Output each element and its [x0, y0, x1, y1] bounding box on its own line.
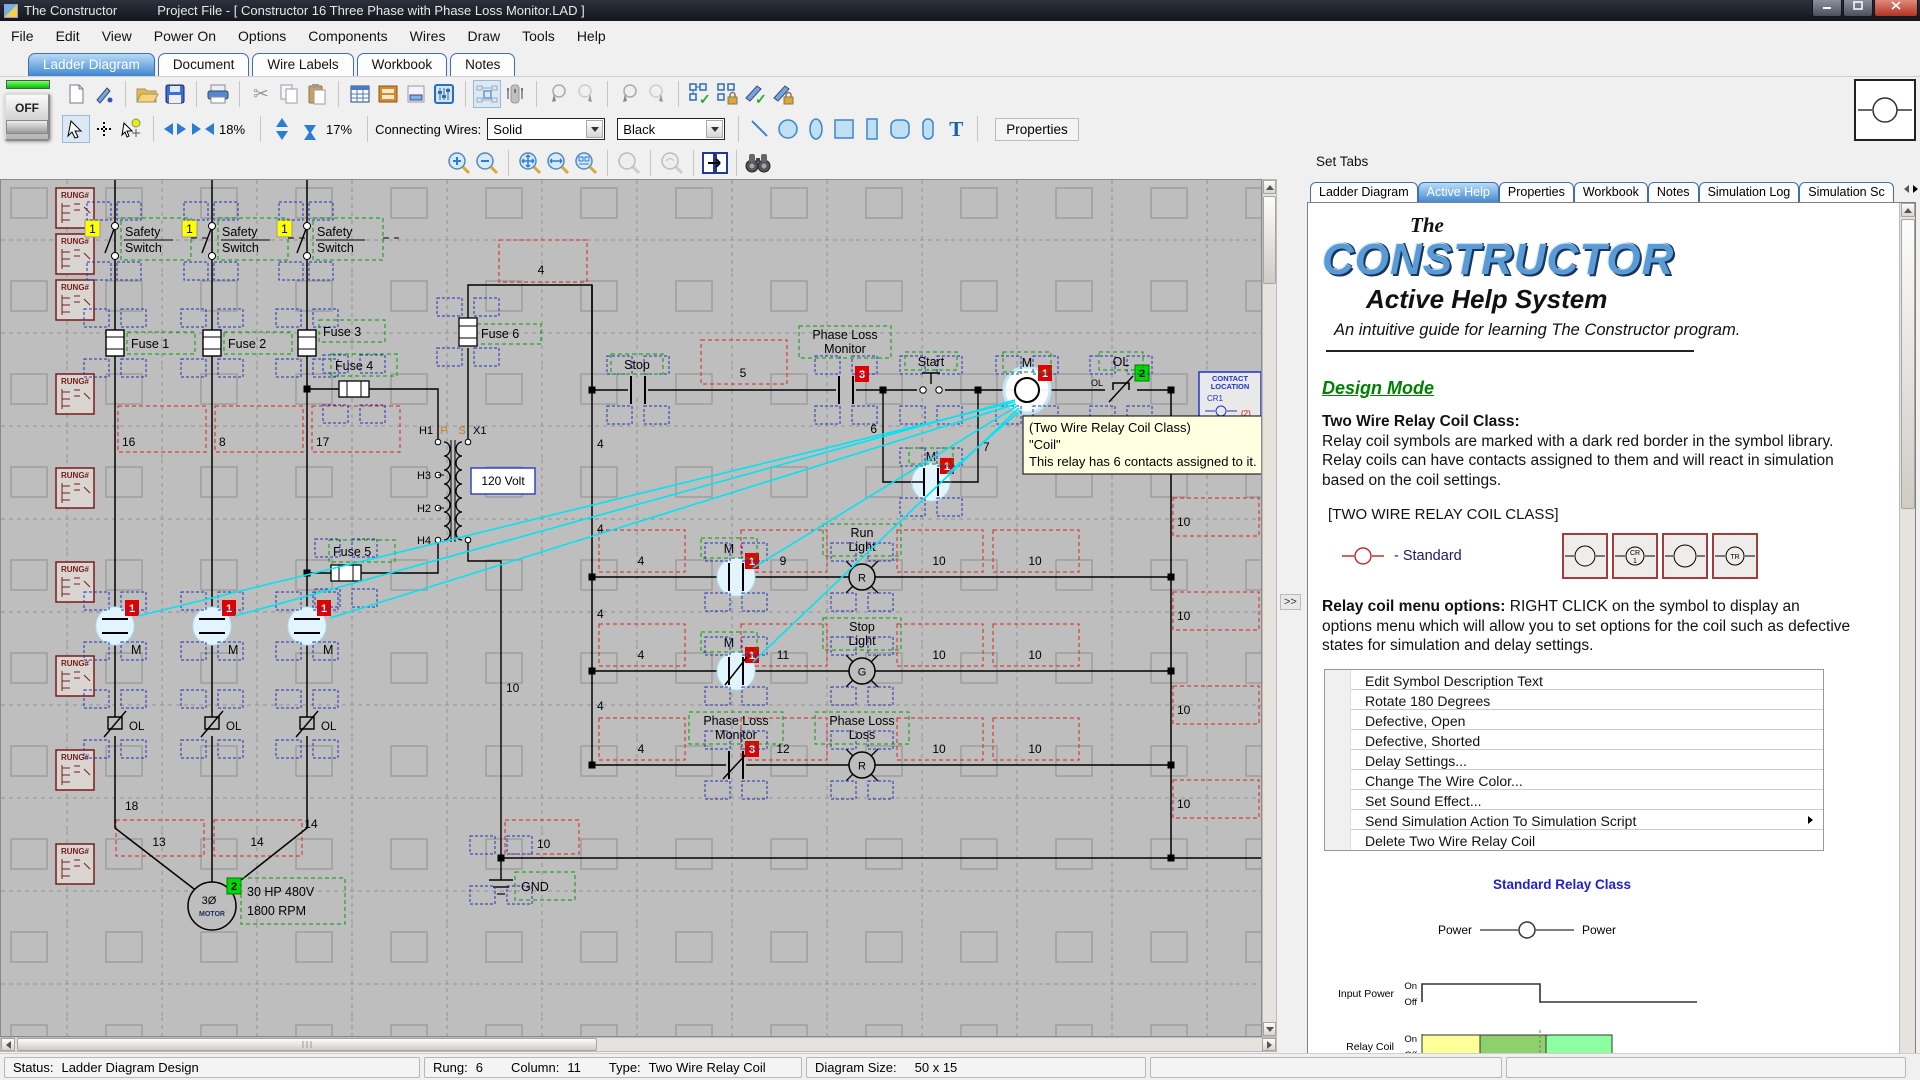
draw-text-icon[interactable]: T [942, 115, 970, 143]
wire-num: 18 [125, 799, 139, 813]
wire-num: 10 [1177, 609, 1191, 623]
wire-num: 10 [537, 837, 551, 851]
edit-wand-icon[interactable] [90, 80, 118, 108]
panel-splitter[interactable]: >> [1277, 179, 1302, 1037]
fuse2-label: Fuse 2 [228, 337, 266, 351]
rung-label: Rung: [433, 1060, 468, 1075]
wire-bend2-icon[interactable] [572, 80, 600, 108]
wire-num: 4 [638, 648, 645, 662]
menu-item-wire-color: Change The Wire Color... [1351, 770, 1823, 790]
diagram-size-label: Diagram Size: [815, 1060, 897, 1075]
tooltip-line2: "Coil" [1029, 437, 1061, 452]
volt-label: 120 Volt [481, 474, 525, 488]
zoom-undo-icon[interactable] [658, 149, 686, 177]
x1-label: X1 [473, 425, 486, 437]
tooltip-line3: This relay has 6 contacts assigned to it… [1029, 454, 1257, 469]
wire-num: 14 [250, 835, 264, 849]
paste-icon[interactable] [303, 80, 331, 108]
vertical-zoom-value: 17% [326, 122, 352, 137]
power-led-icon [6, 80, 50, 89]
menu-item-send-sim: Send Simulation Action To Simulation Scr… [1351, 810, 1823, 830]
document-tabs: Ladder Diagram Document Wire Labels Work… [0, 50, 1920, 77]
wire-num: 17 [316, 435, 330, 449]
wire-num: 10 [1177, 797, 1191, 811]
stop-light-label1: Stop [849, 620, 875, 634]
maximize-button[interactable] [1843, 0, 1873, 17]
svg-text:Power: Power [1438, 923, 1472, 937]
zoom-in-icon[interactable] [445, 149, 473, 177]
wire-num: 4 [638, 742, 645, 756]
save-icon[interactable] [161, 80, 189, 108]
wire-num: 12 [776, 742, 790, 756]
menu-item-defective-shorted: Defective, Shorted [1351, 730, 1823, 750]
app-icon [4, 4, 18, 18]
stop-light-label2: Light [848, 634, 876, 648]
menu-item-rotate: Rotate 180 Degrees [1351, 690, 1823, 710]
h2-label: H2 [417, 503, 431, 515]
plm-label-1: Phase Loss [812, 328, 877, 342]
horizontal-zoom-value: 18% [219, 122, 245, 137]
new-file-icon[interactable] [62, 80, 90, 108]
fuse1-label: Fuse 1 [131, 337, 169, 351]
expand-panel-button[interactable]: >> [1280, 594, 1301, 610]
column-label: Column: [511, 1060, 559, 1075]
document-title: Project File - [ Constructor 16 Three Ph… [157, 3, 585, 18]
copy-icon[interactable] [275, 80, 303, 108]
selected-symbol-preview [1854, 79, 1916, 141]
help-content: The CONSTRUCTOR Active Help System An in… [1308, 203, 1900, 1080]
wire-num: 10 [932, 648, 946, 662]
svg-text:Power: Power [1582, 923, 1616, 937]
start-label: Start [918, 355, 945, 369]
find-binoculars-icon[interactable] [744, 149, 772, 177]
phase-loss-label2: Loss [849, 728, 875, 742]
edit-verify-icon[interactable]: ✓ [742, 80, 770, 108]
svg-text:✓: ✓ [699, 91, 711, 106]
stretch-horizontal-icon[interactable] [161, 115, 189, 143]
standard-coil-icon [1342, 543, 1386, 569]
draw-circle-icon[interactable] [774, 115, 802, 143]
plm2-label1: Phase Loss [703, 714, 768, 728]
coil-symbol-tr: TR [1712, 533, 1758, 579]
wire-table-icon[interactable] [374, 80, 402, 108]
run-light-label1: Run [851, 526, 874, 540]
power-switch[interactable]: OFF [4, 80, 56, 144]
power-off-label: OFF [15, 101, 39, 115]
plm-label-2: Monitor [824, 342, 866, 356]
wire-num: 4 [638, 554, 645, 568]
wire-loop-icon[interactable] [615, 80, 643, 108]
run-contact-label: M [724, 542, 734, 556]
gnd-label: GND [521, 880, 549, 894]
motor-rpm-label: 1800 RPM [247, 904, 306, 918]
draw-line-icon[interactable] [746, 115, 774, 143]
motor-badge: 2 [231, 881, 237, 893]
ol-small-label: OL [1091, 378, 1103, 388]
app-title: The Constructor [24, 3, 117, 18]
p-label: P [440, 425, 447, 437]
right-panel-tabs: Ladder Diagram Active Help Properties Wo… [1302, 179, 1920, 203]
snap-grid-icon[interactable] [90, 115, 118, 143]
close-button[interactable] [1874, 0, 1918, 17]
ladder-diagram-canvas[interactable]: RUNG# 1 Safety Switch [0, 179, 1262, 1037]
cut-icon[interactable]: ✂ [247, 80, 275, 108]
status-label: Status: [13, 1060, 53, 1075]
connecting-wires-label: Connecting Wires: [375, 122, 481, 137]
cr1-label: CR1 [1207, 394, 1224, 403]
wire-num: 16 [122, 435, 136, 449]
menu-components[interactable]: Components [297, 24, 398, 48]
shrink-horizontal-icon[interactable] [189, 115, 217, 143]
zoom-out-icon[interactable] [473, 149, 501, 177]
type-value: Two Wire Relay Coil [649, 1060, 766, 1075]
title-bar: The Constructor Project File - [ Constru… [0, 0, 1920, 21]
print-icon[interactable] [204, 80, 232, 108]
run-light-label2: Light [848, 540, 876, 554]
menu-item-sound: Set Sound Effect... [1351, 790, 1823, 810]
zoom-selection-icon[interactable] [572, 149, 600, 177]
stretch-vertical-icon[interactable] [268, 115, 296, 143]
contact-location-box[interactable]: CONTACT LOCATION CR1 (2) [1199, 372, 1261, 422]
right-panel: Set Tabs Ladder Diagram Active Help Prop… [1302, 150, 1920, 1080]
h3-label: H3 [417, 470, 431, 482]
svg-text:On: On [1404, 1034, 1417, 1045]
wire-num: 10 [1028, 554, 1042, 568]
tooltip-line1: (Two Wire Relay Coil Class) [1029, 420, 1191, 435]
lock-layout-icon[interactable] [714, 80, 742, 108]
tab-notes[interactable]: Notes [450, 53, 515, 76]
menu-wires[interactable]: Wires [399, 24, 457, 48]
coil-symbol-1 [1562, 533, 1608, 579]
wire-num: 4 [597, 607, 604, 621]
menu-power-on[interactable]: Power On [143, 24, 227, 48]
context-menu-image: Edit Symbol Description Text Rotate 180 … [1324, 669, 1824, 851]
diagram-size-value: 50 x 15 [915, 1060, 958, 1075]
tab-document[interactable]: Document [158, 53, 250, 76]
rtab-active-help[interactable]: Active Help [1418, 182, 1499, 203]
wire-num: 8 [219, 435, 226, 449]
tab-ladder-diagram[interactable]: Ladder Diagram [28, 53, 155, 76]
fuse4-label: Fuse 4 [335, 359, 373, 373]
menu-options[interactable]: Options [227, 24, 297, 48]
layout-nodes-icon[interactable] [473, 80, 501, 108]
menu-item-defective-open: Defective, Open [1351, 710, 1823, 730]
wire-num: 14 [304, 817, 318, 831]
open-file-icon[interactable] [133, 80, 161, 108]
wire-bend-icon[interactable] [544, 80, 572, 108]
phase-loss-label1: Phase Loss [829, 714, 894, 728]
class-title: Two Wire Relay Coil Class: [1322, 413, 1896, 431]
rtab-notes[interactable]: Notes [1648, 182, 1699, 203]
type-label: Type: [609, 1060, 641, 1075]
svg-text:Off: Off [1405, 997, 1418, 1008]
s-label: S [458, 425, 465, 437]
wire-num: 10 [932, 742, 946, 756]
menu-item-edit-desc: Edit Symbol Description Text [1351, 670, 1823, 690]
draw-narrow-rect-icon[interactable] [858, 115, 886, 143]
draw-rounded-rect-icon[interactable] [886, 115, 914, 143]
motor-phase-label: 3Ø [202, 895, 217, 907]
wire-style-value: Solid [493, 122, 522, 137]
wire-color-value: Black [623, 122, 655, 137]
plm-badge: 3 [859, 369, 865, 381]
help-scrollbar[interactable] [1899, 203, 1915, 1080]
wire-num: 10 [506, 681, 520, 695]
wire-num: 4 [597, 699, 604, 713]
canvas-vertical-scrollbar[interactable] [1262, 179, 1277, 1037]
menu-bar: File Edit View Power On Options Componen… [0, 21, 1920, 50]
zoom-fit-icon[interactable] [516, 149, 544, 177]
rtab-workbook[interactable]: Workbook [1574, 182, 1648, 203]
menu-options-heading: Relay coil menu options: [1322, 598, 1505, 615]
shrink-vertical-icon[interactable] [296, 115, 324, 143]
wire-num: 9 [780, 554, 787, 568]
rung-value: 6 [476, 1060, 483, 1075]
edit-toolbar: 18% 17% Connecting Wires: Solid Black T … [62, 112, 1852, 146]
zoom-toolbar [445, 147, 1275, 178]
wire-num: 5 [740, 366, 747, 380]
fuse6-label: Fuse 6 [481, 327, 519, 341]
symbol-examples-row: - Standard CR1 TR [1342, 533, 1896, 579]
wire-num: 6 [870, 422, 877, 436]
menu-help[interactable]: Help [566, 24, 617, 48]
wire-num: 13 [152, 835, 166, 849]
rtab-properties[interactable]: Properties [1499, 182, 1574, 203]
svg-text:On: On [1404, 981, 1417, 992]
coil-symbol-cr1: CR1 [1612, 533, 1658, 579]
draw-rounded-narrow-icon[interactable] [914, 115, 942, 143]
menu-view[interactable]: View [91, 24, 143, 48]
class-description: Relay coil symbols are marked with a dar… [1322, 432, 1852, 490]
stop-lamp-letter: G [858, 667, 867, 679]
stoplight-contact-label: M [724, 636, 734, 650]
fuse3-label: Fuse 3 [323, 325, 361, 339]
draw-ellipse-icon[interactable] [802, 115, 830, 143]
h1-label: H1 [419, 425, 433, 437]
stop-label: Stop [624, 358, 650, 372]
canvas-horizontal-scrollbar[interactable] [0, 1037, 1277, 1052]
zoom-width-icon[interactable] [544, 149, 572, 177]
constructor-logo: The CONSTRUCTOR Active Help System An in… [1322, 213, 1896, 352]
logo-tagline: An intuitive guide for learning The Cons… [1334, 321, 1896, 340]
rtab-simulation-script[interactable]: Simulation Sc [1799, 182, 1893, 203]
zoom-previous-icon[interactable] [615, 149, 643, 177]
menu-item-delay: Delay Settings... [1351, 750, 1823, 770]
relay-timing-diagram: Power Power Input Power On Off Relay Coi… [1322, 892, 1882, 1080]
svg-text:✓: ✓ [755, 91, 767, 106]
control-sliders-icon[interactable] [501, 80, 529, 108]
wire-num: 11 [777, 648, 790, 662]
tab-wire-labels[interactable]: Wire Labels [252, 53, 353, 76]
standard-relay-class-title: Standard Relay Class [1322, 877, 1802, 892]
tabs-scroll-left-icon[interactable] [1904, 185, 1909, 193]
draw-rectangle-icon[interactable] [830, 115, 858, 143]
wire-loop2-icon[interactable] [643, 80, 671, 108]
logo-subtitle: Active Help System [1366, 284, 1896, 315]
wire-color-dropdown[interactable]: Black [617, 118, 725, 140]
class-tag: [TWO WIRE RELAY COIL CLASS] [1328, 506, 1896, 523]
main-toolbar: ✂ ✓ ✓ [62, 77, 1852, 111]
plm2-label2: Monitor [715, 728, 757, 742]
design-mode-heading[interactable]: Design Mode [1322, 378, 1896, 399]
motor-hp-label: 30 HP 480V [247, 885, 315, 899]
plm2-badge: 3 [749, 744, 755, 756]
coil-label: M [1022, 356, 1032, 370]
wire-num: 10 [1177, 515, 1191, 529]
wire-num: 10 [1177, 703, 1191, 717]
coil-symbol-3 [1662, 533, 1708, 579]
contact-location-label2: LOCATION [1211, 382, 1250, 391]
column-value: 11 [567, 1060, 581, 1075]
rtab-simulation-log[interactable]: Simulation Log [1699, 182, 1800, 203]
pan-view-icon[interactable] [701, 149, 729, 177]
menu-draw[interactable]: Draw [456, 24, 511, 48]
svg-text:Relay Coil: Relay Coil [1346, 1041, 1394, 1053]
wire-num: 4 [597, 437, 604, 451]
settings-sliders-icon[interactable] [430, 80, 458, 108]
tab-workbook[interactable]: Workbook [357, 53, 448, 76]
wire-num: 10 [932, 554, 946, 568]
run-lamp-letter: R [858, 573, 866, 585]
verify-layout-icon[interactable]: ✓ [686, 80, 714, 108]
wire-num: 4 [538, 263, 545, 277]
phase-loss-lamp-letter: R [858, 761, 866, 773]
constructor-app: The Constructor Project File - [ Constru… [0, 0, 1920, 1080]
select-node-icon[interactable] [118, 115, 146, 143]
menu-file[interactable]: File [0, 24, 45, 48]
wire-style-dropdown[interactable]: Solid [487, 118, 605, 140]
minimize-button[interactable] [1812, 0, 1842, 17]
status-bar: Status: Ladder Diagram Design Rung: 6 Co… [0, 1053, 1920, 1080]
menu-item-delete: Delete Two Wire Relay Coil [1351, 830, 1823, 850]
logo-name: CONSTRUCTOR [1322, 238, 1896, 282]
panel-view-icon[interactable] [402, 80, 430, 108]
coil-tooltip: (Two Wire Relay Coil Class) "Coil" This … [1023, 416, 1262, 474]
tabs-scroll-right-icon[interactable] [1913, 185, 1918, 193]
standard-label: - Standard [1394, 548, 1462, 564]
svg-text:TR: TR [1730, 554, 1739, 561]
svg-text:Input Power: Input Power [1338, 988, 1395, 1000]
wire-num: 10 [1028, 742, 1042, 756]
edit-lock-icon[interactable] [770, 80, 798, 108]
properties-button[interactable]: Properties [995, 118, 1079, 141]
component-table-icon[interactable] [346, 80, 374, 108]
wire-num: 10 [1028, 648, 1042, 662]
ol-label: OL [1113, 355, 1130, 369]
select-cursor-icon[interactable] [62, 115, 90, 143]
motor-word-label: MOTOR [199, 911, 225, 918]
status-value: Ladder Diagram Design [61, 1060, 198, 1075]
active-help-panel: The CONSTRUCTOR Active Help System An in… [1307, 202, 1916, 1080]
svg-text:CR: CR [1630, 550, 1640, 557]
rtab-ladder-diagram[interactable]: Ladder Diagram [1310, 182, 1418, 203]
menu-tools[interactable]: Tools [511, 24, 566, 48]
svg-text:1: 1 [1633, 558, 1637, 565]
set-tabs-label: Set Tabs [1302, 150, 1920, 179]
menu-edit[interactable]: Edit [45, 24, 91, 48]
